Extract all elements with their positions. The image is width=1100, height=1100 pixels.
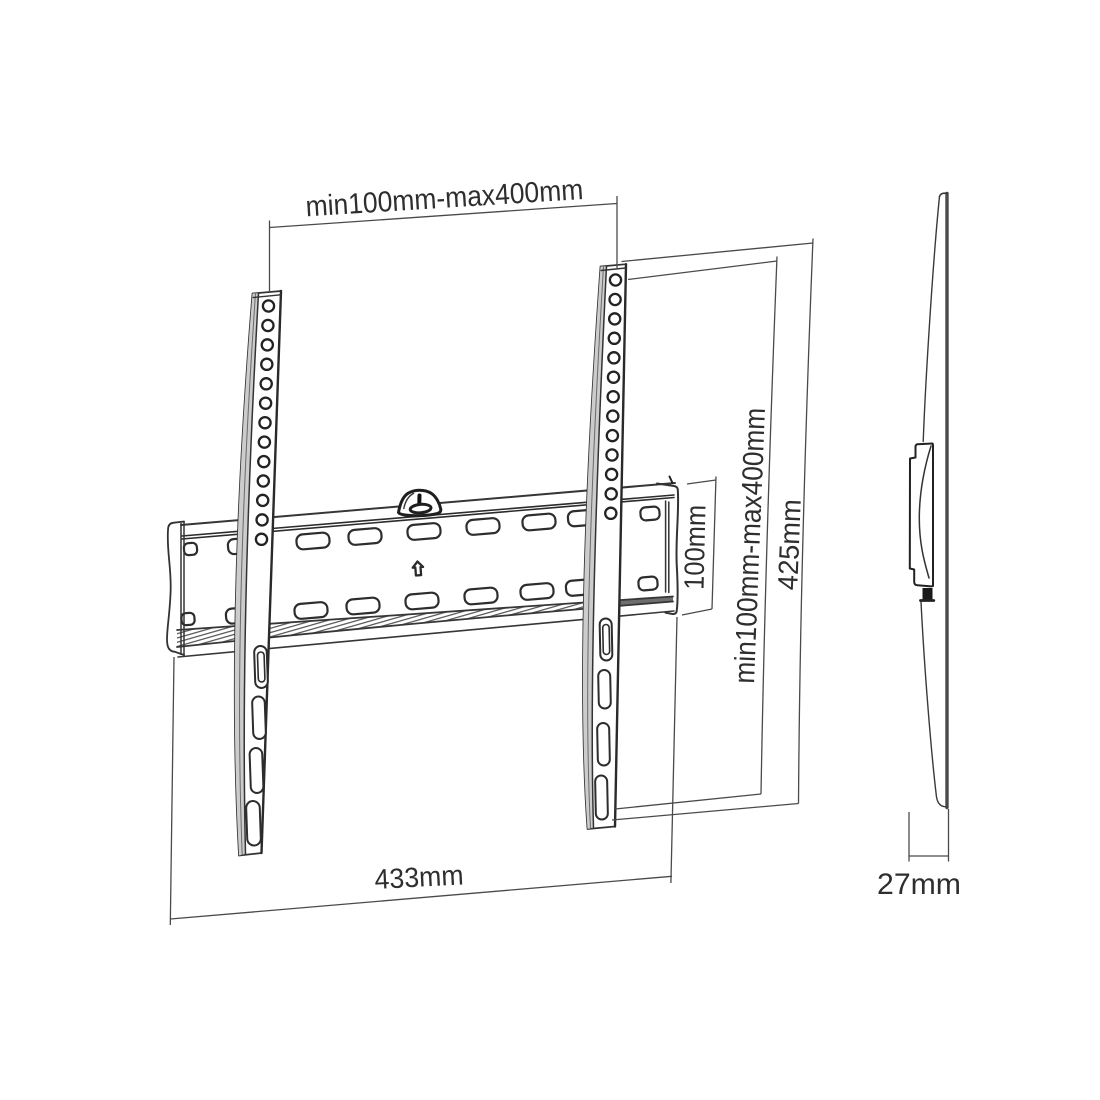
svg-text:433mm: 433mm	[374, 859, 464, 894]
svg-text:100mm: 100mm	[678, 504, 711, 590]
svg-text:425mm: 425mm	[772, 499, 807, 591]
svg-text:27mm: 27mm	[877, 868, 961, 901]
